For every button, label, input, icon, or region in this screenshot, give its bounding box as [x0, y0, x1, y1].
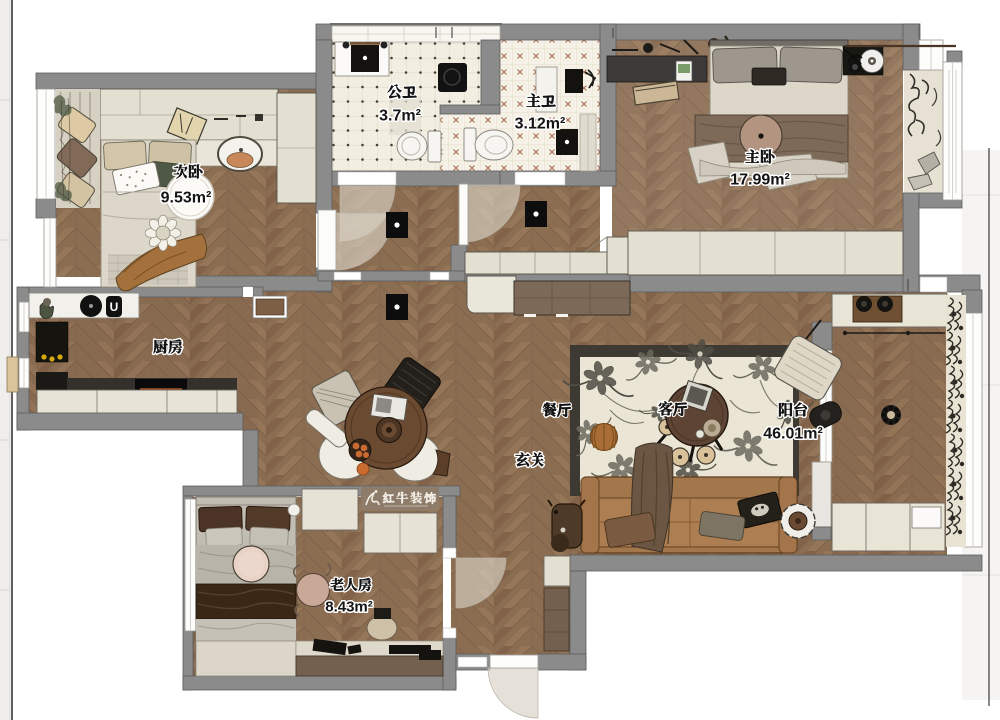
svg-text:9.53m²: 9.53m²	[161, 190, 212, 207]
svg-text:3.12m²: 3.12m²	[515, 116, 566, 133]
svg-text:8.43m²: 8.43m²	[325, 599, 373, 616]
svg-text:17.99m²: 17.99m²	[730, 172, 790, 189]
svg-text:3.7m²: 3.7m²	[379, 108, 421, 125]
svg-text:46.01m²: 46.01m²	[763, 426, 823, 443]
svg-text:U: U	[110, 300, 119, 314]
